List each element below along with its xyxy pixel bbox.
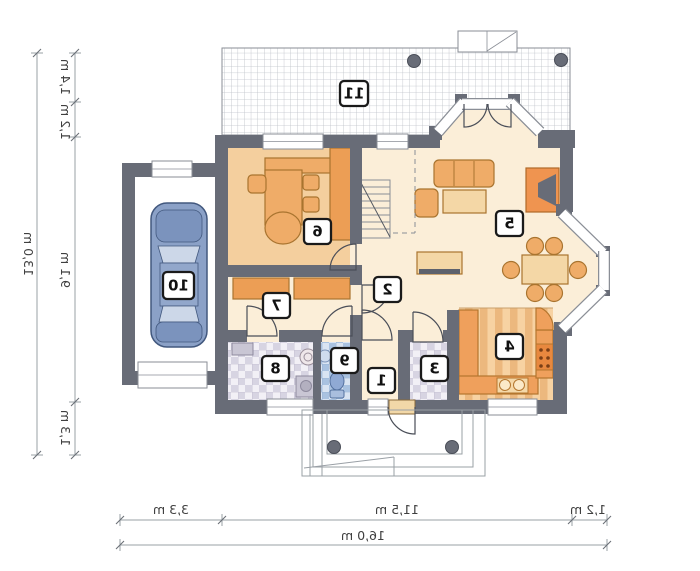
car-windshield bbox=[158, 246, 200, 263]
dimension-bottom: 3,3 m 11,5 m 1,2 m 16,0 m bbox=[116, 502, 611, 551]
dining-chair bbox=[546, 285, 563, 302]
room-label-bathroom: 8 bbox=[262, 356, 289, 381]
room-label-hall: 2 bbox=[374, 277, 401, 302]
dim-bottom-seg-2: 1,2 m bbox=[570, 502, 606, 517]
svg-text:10: 10 bbox=[168, 277, 189, 295]
dim-bottom-seg-1: 11,5 m bbox=[375, 502, 419, 517]
bath-cabinet bbox=[232, 343, 253, 355]
dining-chair bbox=[527, 285, 544, 302]
svg-text:6: 6 bbox=[312, 223, 322, 241]
room-label-corridor: 7 bbox=[263, 293, 290, 318]
svg-text:8: 8 bbox=[270, 360, 280, 378]
porch-column bbox=[328, 441, 341, 454]
chimney bbox=[458, 31, 517, 52]
desk-chair bbox=[265, 212, 301, 244]
porch-column bbox=[446, 441, 459, 454]
dining-table bbox=[522, 255, 568, 284]
svg-text:1: 1 bbox=[376, 372, 386, 390]
room-label-study: 6 bbox=[304, 219, 331, 244]
room-label-garage: 10 bbox=[163, 272, 194, 299]
svg-text:3: 3 bbox=[429, 360, 439, 378]
floor-plan-svg: 1 2 3 4 5 6 7 8 bbox=[0, 0, 700, 571]
svg-text:2: 2 bbox=[382, 281, 392, 299]
entrance-porch bbox=[302, 410, 485, 476]
fireplace bbox=[526, 168, 559, 212]
kitchen-counter bbox=[459, 310, 478, 378]
svg-text:9: 9 bbox=[339, 352, 349, 370]
room-label-living-room: 5 bbox=[496, 211, 523, 236]
dim-left-total: 13,0 m bbox=[21, 232, 36, 276]
dining-chair bbox=[570, 262, 587, 279]
armchair bbox=[415, 189, 438, 217]
sofa bbox=[434, 160, 494, 187]
svg-text:7: 7 bbox=[271, 297, 281, 315]
floor-plan-page: 1 2 3 4 5 6 7 8 bbox=[0, 0, 700, 571]
dim-bottom-total: 16,0 m bbox=[341, 528, 385, 543]
dining-chair bbox=[527, 238, 544, 255]
dim-left-seg-2: 9,1 m bbox=[58, 252, 73, 288]
dining-chair bbox=[546, 238, 563, 255]
svg-text:11: 11 bbox=[344, 85, 365, 103]
room-label-vestibule: 1 bbox=[368, 368, 395, 393]
svg-text:5: 5 bbox=[504, 215, 514, 233]
dim-left-seg-1: 1,2 m bbox=[58, 104, 73, 140]
chair bbox=[248, 175, 266, 193]
dimension-left: 13,0 m 1,4 m 1,2 m 9,1 m 1,3 m bbox=[21, 49, 81, 459]
dim-left-seg-3: 1,3 m bbox=[58, 410, 73, 446]
terrace-column bbox=[555, 54, 568, 67]
room-label-kitchen: 4 bbox=[496, 334, 523, 359]
terrace-column bbox=[408, 55, 421, 68]
entrance-door bbox=[389, 400, 415, 414]
room-label-terrace: 11 bbox=[340, 81, 368, 106]
room-label-wc: 9 bbox=[331, 348, 358, 373]
dim-bottom-seg-0: 3,3 m bbox=[153, 502, 189, 517]
wardrobe bbox=[330, 148, 351, 240]
room-label-pantry: 3 bbox=[421, 356, 448, 381]
coffee-table bbox=[443, 190, 486, 213]
stove bbox=[536, 344, 553, 370]
toilet bbox=[330, 372, 344, 390]
dining-chair bbox=[503, 262, 520, 279]
tv bbox=[419, 269, 460, 274]
dim-left-seg-0: 1,4 m bbox=[58, 59, 73, 95]
svg-text:4: 4 bbox=[504, 338, 514, 356]
car-rear-window bbox=[159, 306, 199, 322]
